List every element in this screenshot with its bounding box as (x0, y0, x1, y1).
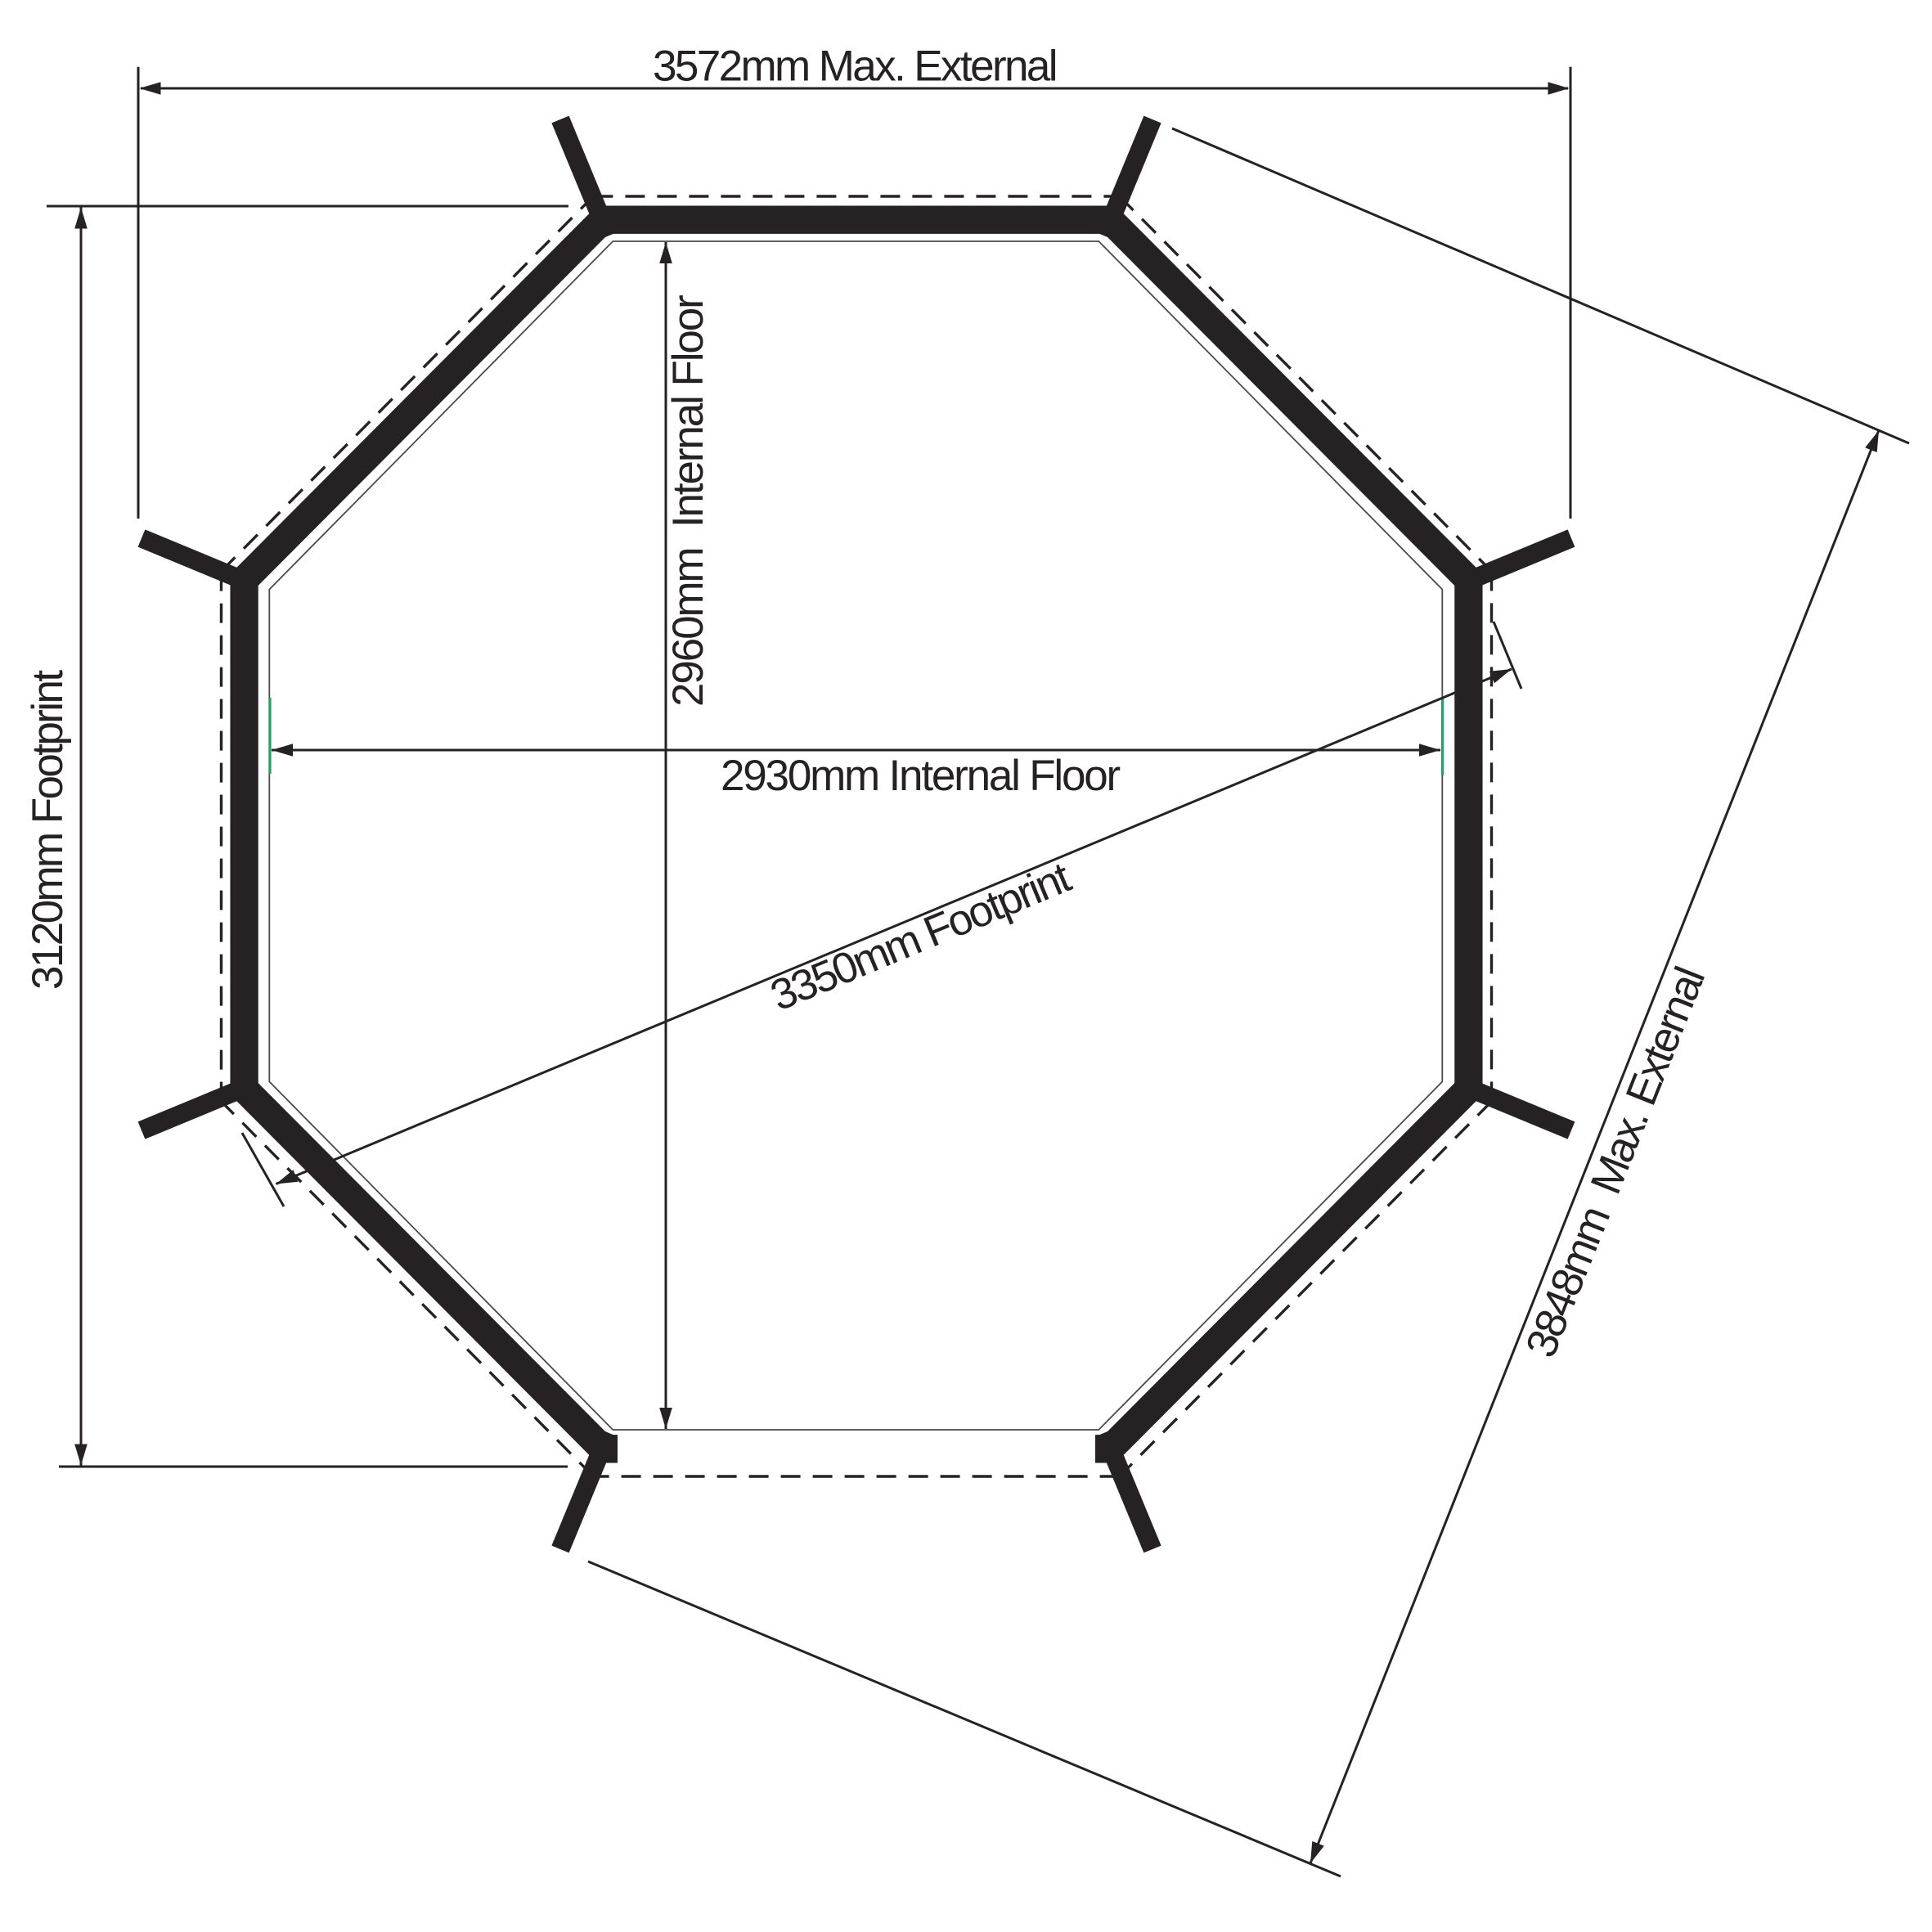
svg-text:3572mm Max. External: 3572mm Max. External (653, 43, 1056, 91)
svg-text:2930mm Internal Floor: 2930mm Internal Floor (721, 752, 1121, 800)
svg-text:2960mm Internal Floor: 2960mm Internal Floor (664, 295, 712, 707)
svg-text:3120mm Footprint: 3120mm Footprint (24, 670, 72, 990)
